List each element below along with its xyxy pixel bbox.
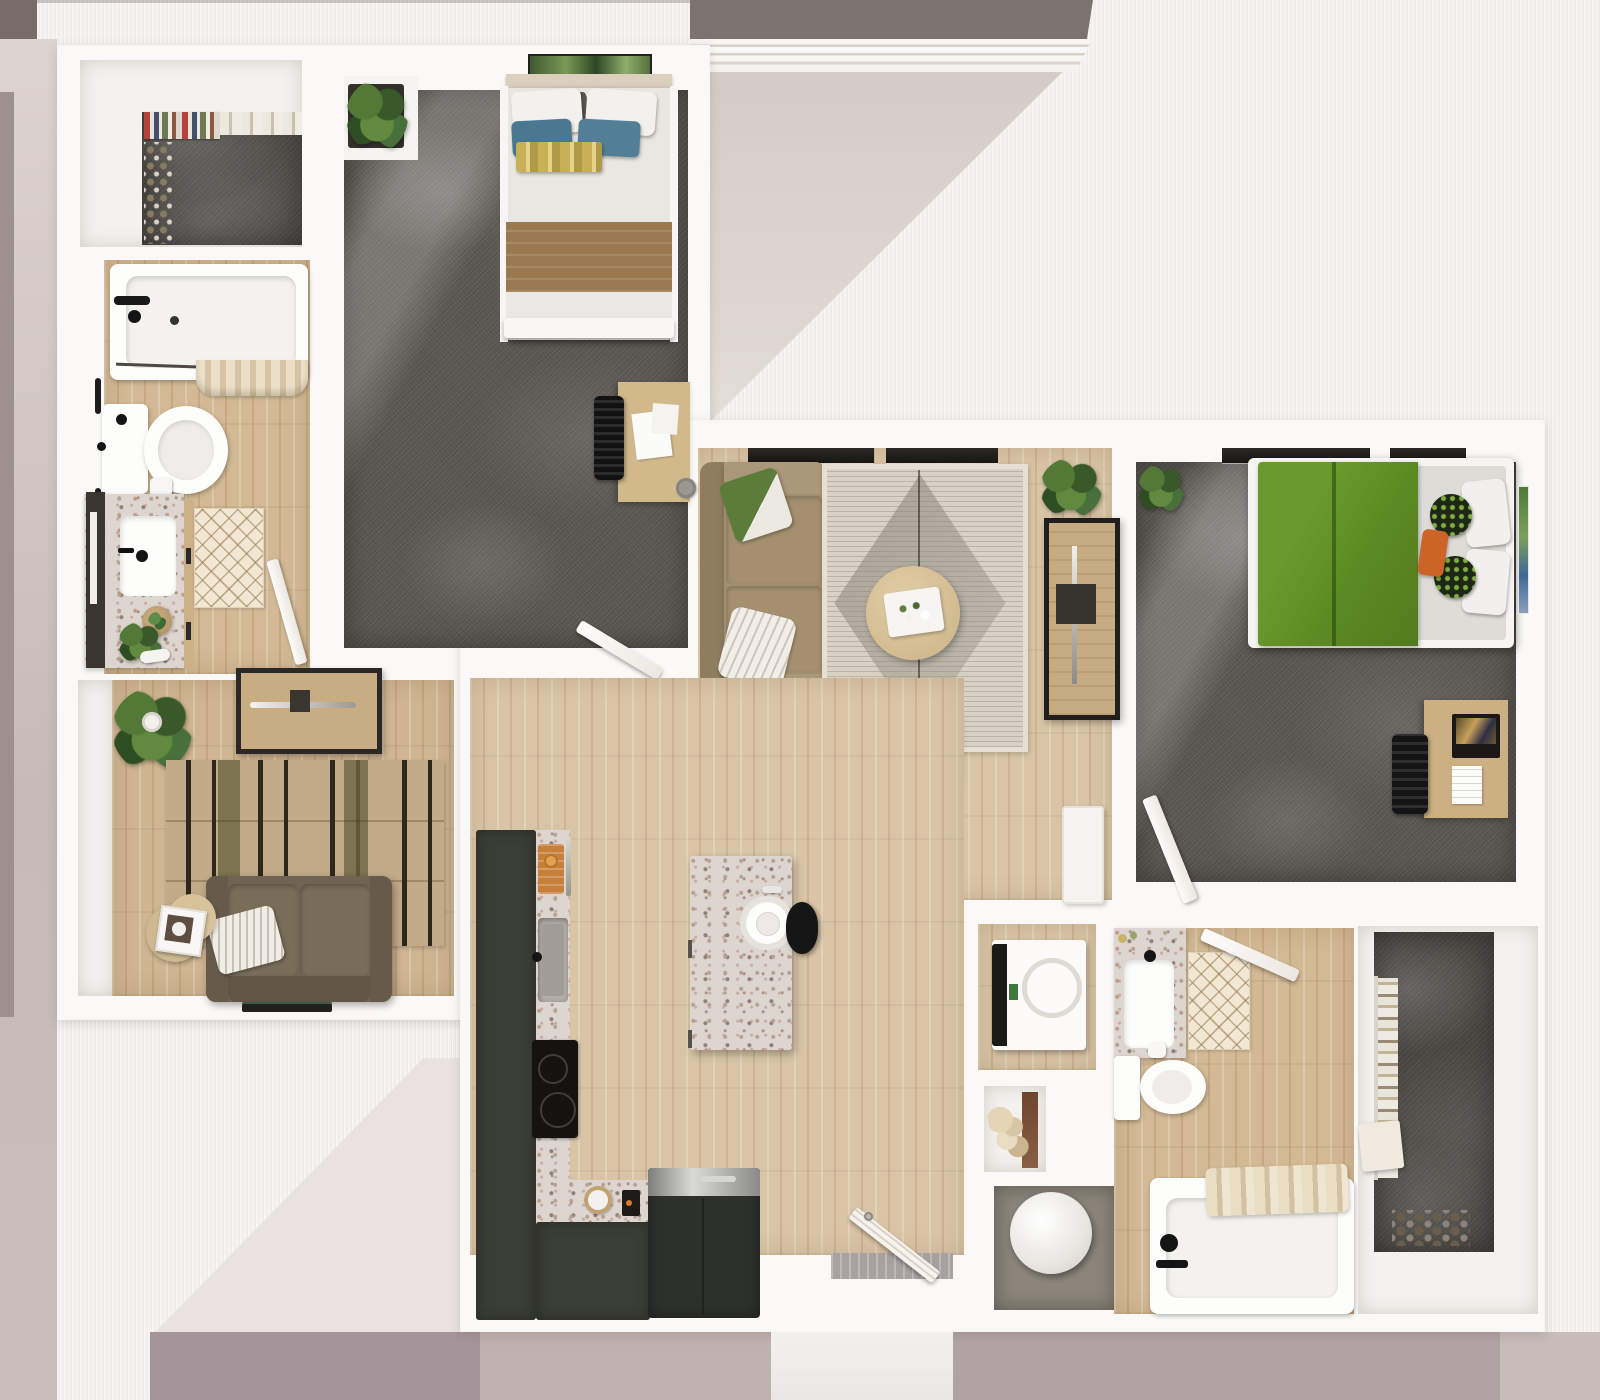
closet1-shoe-row	[144, 142, 172, 244]
refrigerator-top	[648, 1168, 760, 1196]
bath2-towels	[1205, 1164, 1349, 1217]
bathtub-1-faucet-knob	[128, 310, 141, 323]
vanity-2-soap-a	[1118, 934, 1127, 943]
prep-sink-bowl	[584, 1186, 612, 1214]
bed2-green-duvet	[1258, 462, 1418, 646]
toilet-1-flush-button	[116, 414, 127, 425]
bathtub-1-basin	[126, 276, 296, 368]
bed2-duvet-fold	[1332, 462, 1336, 646]
bed2-laptop-screen	[1456, 718, 1496, 744]
towel-bar-upper	[95, 378, 101, 414]
bathtub-2-faucet	[1156, 1260, 1188, 1268]
bed2-desk-chair	[1392, 734, 1428, 814]
vanity-2-sink	[1124, 960, 1174, 1048]
island-handle-a	[688, 940, 692, 958]
kitchen-cabinet-bottom	[536, 1222, 650, 1320]
toilet-1-bowl-inner	[158, 420, 214, 480]
water-heater	[1010, 1192, 1092, 1274]
bathtub-2-faucet-knob	[1160, 1234, 1178, 1252]
washer-control-panel	[992, 944, 1007, 1046]
den-loveseat-back	[228, 976, 370, 1002]
bed1-yellow-throw	[516, 142, 602, 172]
closet2-shoe-row	[1392, 1210, 1470, 1246]
backdrop-left-sliver	[0, 92, 14, 1017]
kitchen-faucet	[532, 952, 542, 962]
living-window-left	[748, 448, 874, 463]
coffee-table-flowers	[892, 596, 936, 628]
closet1-clothes-rack	[144, 112, 220, 139]
toilet-2-bowl-inner	[1152, 1070, 1192, 1104]
living-window-right	[886, 448, 998, 463]
bar-stool	[786, 902, 818, 954]
backdrop-bottom-band-2	[480, 1332, 771, 1400]
vanity-2-faucet	[1144, 950, 1156, 962]
bed2-wall-art	[1518, 486, 1529, 614]
bed1-footboard	[504, 318, 674, 338]
island-faucet	[762, 886, 782, 893]
vanity-1-handle-b	[186, 622, 191, 640]
bathtub-1-drain	[170, 316, 179, 325]
den-plant-pot	[142, 712, 162, 732]
backdrop-bottom-band-1	[150, 1332, 480, 1400]
bed1-brown-blanket	[506, 222, 672, 292]
vanity-1-side-panel	[184, 500, 194, 668]
entry-door-handle	[864, 1212, 873, 1221]
backdrop-top-hairline	[37, 0, 690, 3]
towel-hook	[97, 442, 106, 451]
kitchen-sink-basin	[542, 924, 564, 996]
den-loveseat-cushion-right	[300, 884, 370, 976]
entry-porch	[771, 1332, 953, 1400]
closet2-door	[1358, 1120, 1405, 1172]
den-candle	[172, 922, 186, 936]
cooktop-burner-large	[540, 1092, 576, 1128]
backdrop-bottom-band-3	[953, 1332, 1500, 1400]
backdrop-corner-square	[0, 0, 37, 39]
vanity-1-faucet	[136, 550, 148, 562]
bed1-plant	[346, 80, 408, 152]
shower-curtain	[196, 360, 308, 396]
vanity-1-sink	[120, 516, 176, 596]
den-floor-edge	[78, 680, 114, 996]
kitchen-cabinet-run	[476, 830, 536, 1320]
backdrop-diagonal-wedge-top	[690, 72, 1070, 434]
vanity-1-faucet-handle	[118, 548, 134, 553]
island-handle-b	[688, 1030, 692, 1048]
bed1-desk-chair	[594, 396, 624, 480]
backdrop-bottom-band-4	[1500, 1332, 1600, 1400]
bed1-desk-paper-2	[651, 403, 679, 435]
leaning-mirror-glare	[90, 512, 97, 604]
closet1-shelf-items	[220, 112, 302, 135]
living-plant	[1040, 458, 1102, 518]
refrigerator-handle	[700, 1176, 736, 1182]
cooktop-burner-small	[538, 1054, 568, 1084]
floor-plan-canvas	[0, 0, 1600, 1400]
washer-energy-label	[1009, 984, 1018, 1000]
bath2-rug	[1188, 952, 1250, 1050]
hall-cabinet	[1062, 806, 1104, 904]
den-rug-seam-a	[166, 820, 444, 822]
kitchen-towel-rail	[566, 838, 571, 896]
bed1-sheet-band	[506, 292, 672, 320]
refrigerator-seam	[702, 1198, 704, 1314]
washer-door-ring	[1022, 958, 1082, 1018]
bath1-rug	[194, 508, 264, 608]
den-magazine	[242, 1002, 332, 1012]
backdrop-taupe-band	[690, 0, 1093, 39]
bed2-desk-paper	[1452, 766, 1482, 804]
bathtub-1-faucet	[114, 296, 150, 305]
cutting-board-bowl	[544, 854, 558, 868]
small-appliance-light	[626, 1200, 632, 1206]
den-console-knob	[290, 690, 310, 712]
toilet-2-paper	[1148, 1042, 1166, 1058]
tv-media-box	[1056, 584, 1096, 624]
toilet-2-tank	[1114, 1056, 1140, 1120]
bed1-stool	[676, 478, 696, 498]
pampas-grass	[986, 1101, 1034, 1164]
backdrop-crown-molding	[690, 39, 1092, 72]
den-loveseat-arm-right	[370, 876, 392, 1002]
island-sink-basin	[756, 912, 780, 936]
cutting-board	[538, 844, 564, 894]
vanity-2-soap-b	[1130, 932, 1137, 939]
vanity-1-handle-a	[186, 548, 191, 564]
backdrop-diagonal-wedge-bottom	[155, 1058, 460, 1332]
bed2-plant	[1138, 464, 1184, 514]
